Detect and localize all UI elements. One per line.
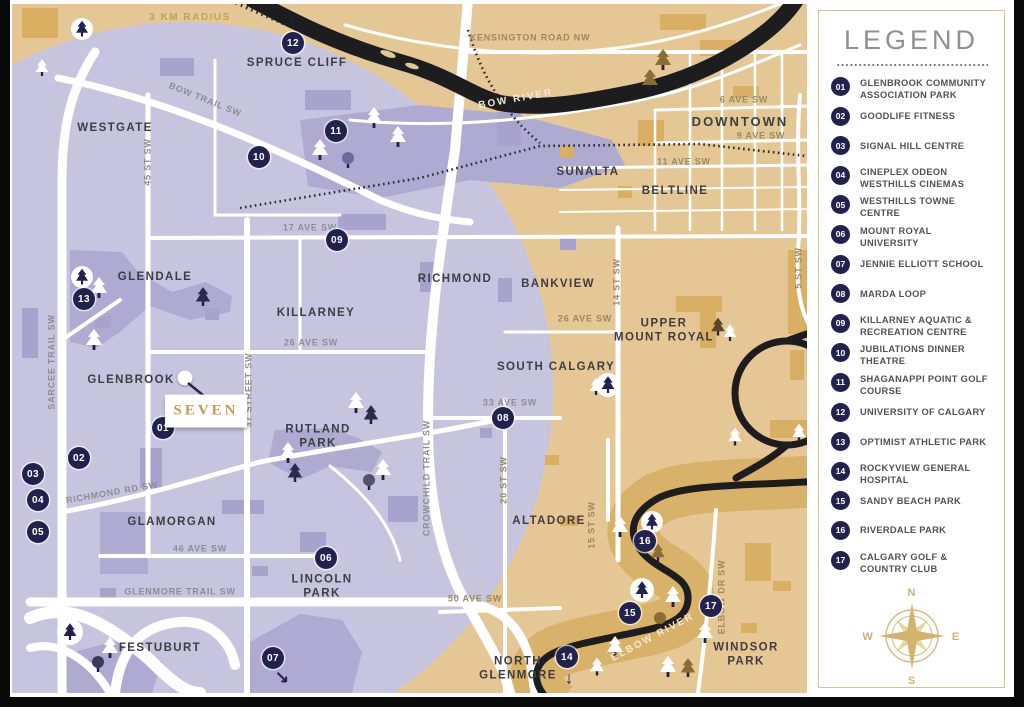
legend-item-label: CINEPLEX ODEON WESTHILLS CINEMAS (860, 166, 992, 190)
legend-item-label: MOUNT ROYAL UNIVERSITY (860, 225, 992, 249)
map-marker-14: 14 (556, 646, 578, 668)
property-name: SEVEN (173, 403, 238, 420)
legend-item-label: UNIVERSITY OF CALGARY (860, 403, 986, 422)
map-marker-10: 10 (248, 146, 270, 168)
map-marker-03: 03 (22, 463, 44, 485)
map-marker-number: 02 (73, 453, 85, 464)
legend-item-number: 12 (831, 403, 850, 422)
map-screenshot: WESTGATESPRUCE CLIFFGLENDALEKILLARNEYGLE… (0, 0, 1024, 707)
compass-rose: N E S W (852, 584, 972, 688)
map-marker-number: 09 (331, 235, 343, 246)
compass-south: S (907, 675, 915, 687)
map-marker-04: 04 (27, 489, 49, 511)
map-marker-15: 15 (619, 602, 641, 624)
legend-item-label: GOODLIFE FITNESS (860, 107, 955, 126)
map-marker-number: 14 (561, 652, 573, 663)
legend-item-label: SIGNAL HILL CENTRE (860, 136, 964, 155)
map-marker-11: 11 (325, 120, 347, 142)
legend-item: 01GLENBROOK COMMUNITY ASSOCIATION PARK (831, 77, 992, 107)
legend-item-label: KILLARNEY AQUATIC & RECREATION CENTRE (860, 314, 992, 338)
legend-item-number: 02 (831, 107, 850, 126)
map-marker-07: 07 (262, 647, 284, 669)
compass-east: E (951, 631, 959, 643)
legend-box: LEGEND 01GLENBROOK COMMUNITY ASSOCIATION… (818, 10, 1005, 688)
legend-item-number: 10 (831, 343, 850, 362)
legend-title: LEGEND (831, 25, 992, 56)
legend-item-label: WESTHILLS TOWNE CENTRE (860, 195, 992, 219)
map-marker-number: 11 (330, 126, 342, 137)
map-marker-08: 08 (492, 407, 514, 429)
legend-item-number: 15 (831, 491, 850, 510)
legend-item: 12UNIVERSITY OF CALGARY (831, 403, 992, 433)
legend-item: 02GOODLIFE FITNESS (831, 107, 992, 137)
legend-item: 10JUBILATIONS DINNER THEATRE (831, 343, 992, 373)
legend-item: 03SIGNAL HILL CENTRE (831, 136, 992, 166)
map-marker-02: 02 (68, 447, 90, 469)
map-marker-number: 10 (253, 152, 265, 163)
legend-item: 11SHAGANAPPI POINT GOLF COURSE (831, 373, 992, 403)
map-marker-number: 06 (320, 553, 332, 564)
legend-item-label: MARDA LOOP (860, 284, 926, 303)
legend-item-label: JUBILATIONS DINNER THEATRE (860, 343, 992, 367)
legend-item: 17CALGARY GOLF & COUNTRY CLUB (831, 551, 992, 581)
map-marker-number: 16 (639, 536, 651, 547)
map-marker-number: 07 (267, 653, 279, 664)
legend-item-number: 01 (831, 77, 850, 96)
legend-item-label: SHAGANAPPI POINT GOLF COURSE (860, 373, 992, 397)
legend-item: 13OPTIMIST ATHLETIC PARK (831, 432, 992, 462)
legend-item-number: 03 (831, 136, 850, 155)
map-marker-number: 12 (287, 38, 299, 49)
legend-item-number: 08 (831, 284, 850, 303)
map-marker-number: 05 (32, 527, 44, 538)
legend-item: 14ROCKYVIEW GENERAL HOSPITAL (831, 462, 992, 492)
map-marker-06: 06 (315, 547, 337, 569)
legend-item-label: OPTIMIST ATHLETIC PARK (860, 432, 986, 451)
compass-north: N (907, 587, 916, 599)
legend-item: 05WESTHILLS TOWNE CENTRE (831, 195, 992, 225)
legend-item: 06MOUNT ROYAL UNIVERSITY (831, 225, 992, 255)
legend-item-label: JENNIE ELLIOTT SCHOOL (860, 255, 984, 274)
legend-item-number: 17 (831, 551, 850, 570)
legend-item: 07JENNIE ELLIOTT SCHOOL (831, 255, 992, 285)
legend-item-number: 09 (831, 314, 850, 333)
legend-item-number: 16 (831, 521, 850, 540)
legend-item: 15SANDY BEACH PARK (831, 491, 992, 521)
legend-item: 16RIVERDALE PARK (831, 521, 992, 551)
legend-item: 09KILLARNEY AQUATIC & RECREATION CENTRE (831, 314, 992, 344)
map-marker-16: 16 (634, 530, 656, 552)
map-marker-05: 05 (27, 521, 49, 543)
legend-item-number: 13 (831, 432, 850, 451)
legend-item-number: 07 (831, 255, 850, 274)
legend-item-number: 14 (831, 462, 850, 481)
legend-item-number: 06 (831, 225, 850, 244)
legend-item: 04CINEPLEX ODEON WESTHILLS CINEMAS (831, 166, 992, 196)
property-label: SEVEN (165, 395, 247, 428)
legend-item-number: 04 (831, 166, 850, 185)
legend-item-label: RIVERDALE PARK (860, 521, 946, 540)
map-marker-12: 12 (282, 32, 304, 54)
map-marker-number: 17 (705, 601, 717, 612)
map-marker-17: 17 (700, 595, 722, 617)
legend-item-label: CALGARY GOLF & COUNTRY CLUB (860, 551, 992, 575)
map-marker-number: 03 (27, 469, 39, 480)
compass-west: W (862, 631, 873, 643)
legend-item-label: SANDY BEACH PARK (860, 491, 961, 510)
legend-item-label: GLENBROOK COMMUNITY ASSOCIATION PARK (860, 77, 992, 101)
legend-panel: LEGEND 01GLENBROOK COMMUNITY ASSOCIATION… (810, 0, 1014, 697)
legend-list: 01GLENBROOK COMMUNITY ASSOCIATION PARK02… (831, 77, 992, 580)
legend-item: 08MARDA LOOP (831, 284, 992, 314)
legend-item-label: ROCKYVIEW GENERAL HOSPITAL (860, 462, 992, 486)
legend-item-number: 11 (831, 373, 850, 392)
legend-item-number: 05 (831, 195, 850, 214)
legend-divider (836, 63, 988, 67)
map-marker-number: 15 (624, 608, 636, 619)
map-marker-number: 08 (497, 413, 509, 424)
map-marker-number: 04 (32, 495, 44, 506)
map-marker-13: 13 (73, 288, 95, 310)
map-marker-number: 13 (78, 294, 90, 305)
map-marker-09: 09 (326, 229, 348, 251)
